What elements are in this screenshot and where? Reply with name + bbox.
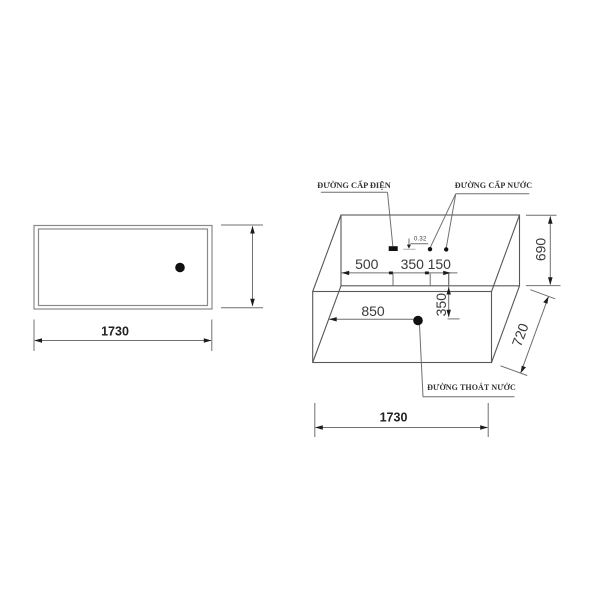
svg-text:500: 500 (355, 256, 379, 272)
svg-text:ĐƯỜNG CẤP ĐIỆN: ĐƯỜNG CẤP ĐIỆN (317, 180, 391, 190)
svg-text:350: 350 (401, 256, 425, 272)
svg-text:850: 850 (361, 303, 385, 319)
svg-text:ĐƯỜNG CẤP NƯỚC: ĐƯỜNG CẤP NƯỚC (455, 180, 533, 190)
svg-text:1730: 1730 (380, 411, 408, 425)
svg-text:150: 150 (428, 256, 452, 272)
svg-text:350: 350 (433, 293, 449, 317)
svg-text:1730: 1730 (101, 325, 129, 339)
svg-text:0.32: 0.32 (414, 236, 427, 242)
svg-text:ĐƯỜNG THOÁT NƯỚC: ĐƯỜNG THOÁT NƯỚC (427, 382, 516, 392)
svg-text:690: 690 (533, 238, 549, 262)
